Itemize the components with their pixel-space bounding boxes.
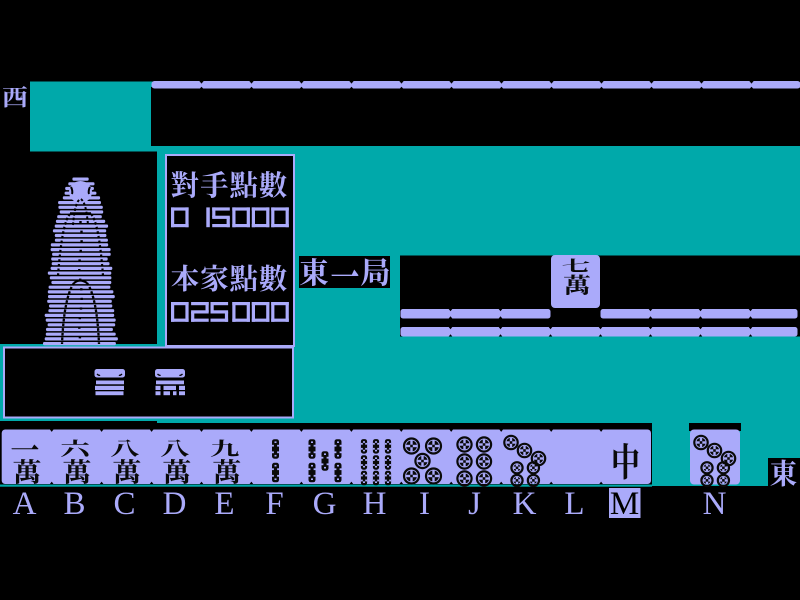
svg-text:K: K bbox=[513, 486, 537, 522]
svg-text:J: J bbox=[468, 486, 481, 522]
svg-text:F: F bbox=[265, 486, 283, 522]
svg-text:I: I bbox=[419, 486, 430, 522]
svg-text:G: G bbox=[313, 486, 337, 522]
svg-text:N: N bbox=[703, 486, 727, 522]
svg-text:E: E bbox=[214, 486, 234, 522]
svg-text:C: C bbox=[113, 486, 135, 522]
svg-text:B: B bbox=[63, 486, 85, 522]
svg-text:M: M bbox=[610, 486, 639, 522]
svg-text:D: D bbox=[163, 486, 187, 522]
svg-text:A: A bbox=[13, 486, 37, 522]
svg-text:H: H bbox=[363, 486, 387, 522]
svg-text:L: L bbox=[564, 486, 584, 522]
